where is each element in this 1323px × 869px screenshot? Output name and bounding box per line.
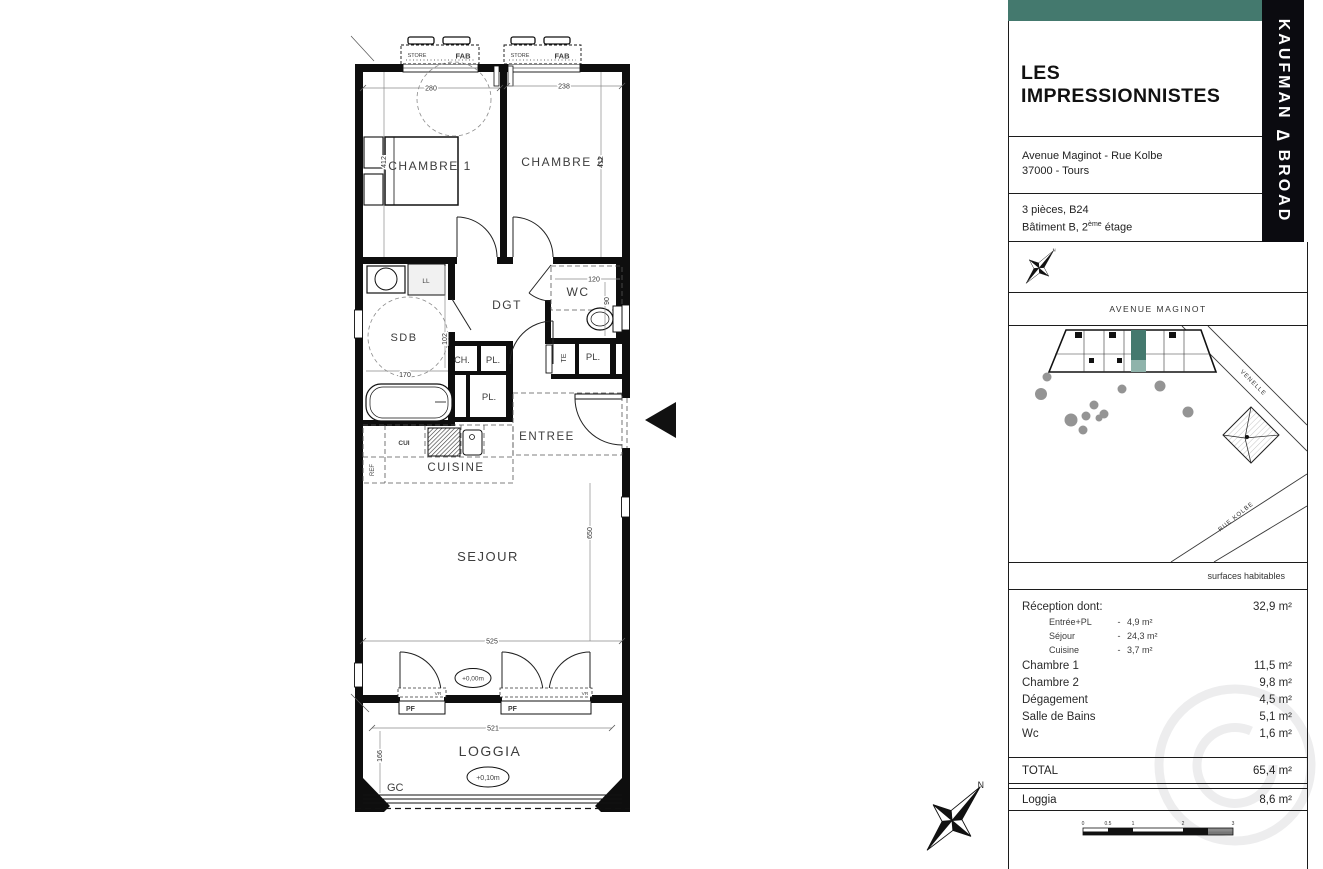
table-subrow: Séjour-24,3 m² <box>1009 629 1307 643</box>
site-map: VENELLE RUE KOLBE <box>1009 326 1307 563</box>
surfaces-header: surfaces habitables <box>1009 563 1307 590</box>
north-label: N <box>978 780 984 790</box>
svg-text:3: 3 <box>1232 821 1235 827</box>
gc-label: GC <box>387 782 404 794</box>
svg-text:+0,10m: +0,10m <box>476 775 500 782</box>
loggia-row: Loggia8,6 m² <box>1009 789 1307 811</box>
ll-label: LL <box>422 278 430 285</box>
vr-label: VR <box>435 691 442 697</box>
street-bottom-label: RUE KOLBE <box>1218 501 1255 533</box>
building-footprint <box>1049 330 1216 372</box>
te-label: TE <box>561 353 568 362</box>
bathtub <box>366 384 452 421</box>
accent-band <box>1008 0 1262 21</box>
scale-bar-row: 0 0.5 1 2 3 <box>1009 811 1307 869</box>
svg-text:650: 650 <box>587 527 594 539</box>
street-top-row: AVENUE MAGINOT <box>1009 293 1307 326</box>
pf-label: PF <box>508 706 518 713</box>
title-box: LES IMPRESSIONNISTES <box>1008 21 1262 137</box>
unit-line1: 3 pièces, B24 <box>1009 194 1262 218</box>
address-box: Avenue Maginot - Rue Kolbe 37000 - Tours <box>1008 137 1262 194</box>
surfaces-table: Réception dont:32,9 m² Entrée+PL-4,9 m² … <box>1009 590 1307 758</box>
table-row: Chambre 29,8 m² <box>1009 674 1307 691</box>
svg-text:0.5: 0.5 <box>1105 821 1112 827</box>
svg-text:102: 102 <box>442 333 449 345</box>
floorplan-sheet: STORE FAB STORE FAB <box>0 0 1323 869</box>
pl-label: PL. <box>482 392 496 403</box>
ch-label: CH. <box>454 355 470 365</box>
svg-text:1: 1 <box>1132 821 1135 827</box>
table-row: Wc1,6 m² <box>1009 725 1307 742</box>
washbasin <box>367 266 405 293</box>
chambre2-label: CHAMBRE 2 <box>521 155 605 169</box>
loggia-label: LOGGIA <box>459 743 522 759</box>
unit-highlight-loggia <box>1131 360 1146 372</box>
street-right-label: VENELLE <box>1239 369 1267 397</box>
svg-text:521: 521 <box>487 726 499 733</box>
pf-label: PF <box>406 706 416 713</box>
compass-icon: N <box>1013 243 1065 293</box>
svg-text:2: 2 <box>1182 821 1185 827</box>
address-line1: Avenue Maginot - Rue Kolbe <box>1009 137 1262 164</box>
entrance-arrow <box>645 402 676 438</box>
total-row: TOTAL65,4 m² <box>1009 758 1307 784</box>
brand-right: BROAD <box>1274 150 1292 224</box>
svg-text:120: 120 <box>588 277 600 284</box>
nightstands <box>364 137 383 205</box>
svg-text:166: 166 <box>377 750 384 762</box>
unit-line2: Bâtiment B, 2ème étage <box>1009 218 1262 235</box>
store-label: STORE <box>511 53 530 59</box>
fab-label: FAB <box>456 52 472 61</box>
unit-box: 3 pièces, B24 Bâtiment B, 2ème étage <box>1008 194 1262 242</box>
svg-text:412: 412 <box>381 156 388 168</box>
svg-text:90: 90 <box>604 297 611 305</box>
floor-plan: STORE FAB STORE FAB <box>345 30 695 820</box>
toilet <box>587 306 622 332</box>
brand-logo-icon: ∆ <box>1273 130 1294 141</box>
fab-label: FAB <box>555 52 571 61</box>
compass-row: N <box>1009 242 1307 293</box>
svg-text:280: 280 <box>425 86 437 93</box>
pl-label: PL. <box>486 355 500 366</box>
scale-bar: 0 0.5 1 2 3 <box>1077 819 1247 845</box>
site-map-drawing: VENELLE RUE KOLBE <box>1009 326 1307 562</box>
svg-text:+0,00m: +0,00m <box>462 676 484 683</box>
street-top-label: AVENUE MAGINOT <box>1109 304 1206 314</box>
svg-text:525: 525 <box>486 639 498 646</box>
kitchen-sink <box>463 430 482 455</box>
dgt-label: DGT <box>492 298 522 312</box>
cuisine-label: CUISINE <box>427 462 484 474</box>
svg-text:170: 170 <box>399 372 411 379</box>
ref-label: REF <box>370 464 376 476</box>
wc-label: WC <box>567 285 590 299</box>
svg-text:238: 238 <box>558 84 570 91</box>
table-row: Chambre 111,5 m² <box>1009 657 1307 674</box>
brand-left: KAUFMAN <box>1274 19 1292 121</box>
store-label: STORE <box>408 53 427 59</box>
address-line2: 37000 - Tours <box>1009 164 1262 179</box>
sdb-label: SDB <box>390 332 417 344</box>
kitchen-hob <box>428 428 460 456</box>
sejour-label: SEJOUR <box>457 549 519 564</box>
table-row: Dégagement4,5 m² <box>1009 691 1307 708</box>
chambre1-label: CHAMBRE 1 <box>388 159 472 173</box>
entree-label: ENTREE <box>519 431 575 443</box>
unit-highlight <box>1131 330 1146 360</box>
lower-panel: N AVENUE MAGINOT <box>1008 242 1308 869</box>
pl-label: PL. <box>586 352 600 363</box>
vr-label: VR <box>582 691 589 697</box>
neighbour-roof <box>1223 407 1279 463</box>
shutter-boxes: STORE FAB STORE FAB <box>401 37 581 64</box>
cui-label: CUI <box>398 440 409 447</box>
page-title: LES IMPRESSIONNISTES <box>1009 21 1262 108</box>
compass-large: N <box>900 772 1004 869</box>
table-row: Salle de Bains5,1 m² <box>1009 708 1307 725</box>
turning-circle <box>417 62 491 136</box>
table-subrow: Cuisine-3,7 m² <box>1009 643 1307 657</box>
loggia-railing <box>355 795 630 809</box>
trees <box>1035 373 1194 435</box>
table-row: Réception dont:32,9 m² <box>1009 598 1307 615</box>
svg-text:0: 0 <box>1082 821 1085 827</box>
brand-bar: KAUFMAN ∆ BROAD <box>1262 0 1304 242</box>
north-label: N <box>1053 248 1056 253</box>
table-subrow: Entrée+PL-4,9 m² <box>1009 615 1307 629</box>
